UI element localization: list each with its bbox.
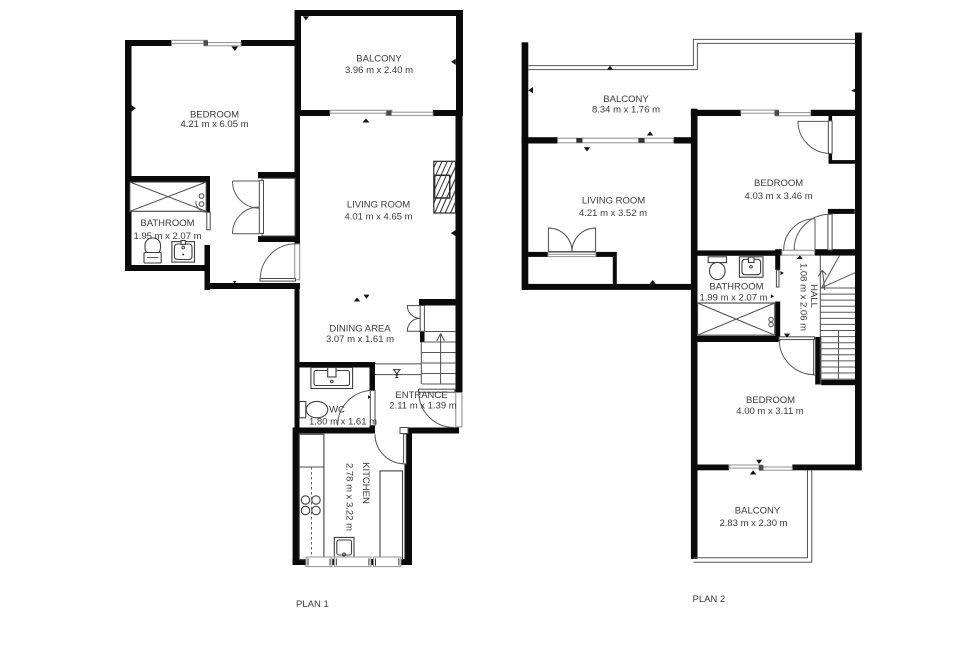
svg-text:BATHROOM: BATHROOM [709,282,763,293]
svg-text:WC: WC [329,405,345,416]
svg-text:ENTRANCE: ENTRANCE [395,390,447,401]
svg-text:2.11 m x 1.39 m: 2.11 m x 1.39 m [389,401,456,412]
svg-text:1.95 m x 2.07 m: 1.95 m x 2.07 m [133,231,201,242]
svg-text:1.08 m x 2.06 m: 1.08 m x 2.06 m [797,263,808,331]
svg-text:HALL: HALL [808,284,819,308]
svg-text:2.78 m x 3.22 m: 2.78 m x 3.22 m [344,463,355,531]
svg-text:BALCONY: BALCONY [603,94,649,105]
svg-text:4.00 m x 3.11 m: 4.00 m x 3.11 m [736,406,803,417]
svg-text:PLAN 1: PLAN 1 [296,599,329,610]
svg-text:BEDROOM: BEDROOM [746,395,795,406]
svg-text:8.34 m x 1.76 m: 8.34 m x 1.76 m [592,104,660,115]
svg-text:3.07 m x 1.61 m: 3.07 m x 1.61 m [326,334,394,345]
svg-text:DINING AREA: DINING AREA [329,323,391,334]
svg-text:PLAN 2: PLAN 2 [693,594,726,605]
svg-text:1.80 m x 1.61 m: 1.80 m x 1.61 m [309,416,377,427]
svg-text:2.83 m x 2.30 m: 2.83 m x 2.30 m [719,518,787,529]
svg-text:LIVING ROOM: LIVING ROOM [347,200,410,211]
svg-text:BALCONY: BALCONY [735,506,781,517]
svg-text:KITCHEN: KITCHEN [360,462,371,504]
svg-text:LIVING ROOM: LIVING ROOM [582,196,645,207]
svg-text:1.99 m x 2.07 m: 1.99 m x 2.07 m [699,292,767,303]
svg-text:BALCONY: BALCONY [356,53,402,64]
svg-text:4.21 m x 6.05 m: 4.21 m x 6.05 m [180,119,248,130]
svg-text:BATHROOM: BATHROOM [140,218,194,229]
svg-text:3.96 m x 2.40 m: 3.96 m x 2.40 m [345,65,413,76]
svg-text:4.21 m x 3.52 m: 4.21 m x 3.52 m [579,208,647,219]
svg-text:4.03 m x 3.46 m: 4.03 m x 3.46 m [745,191,813,202]
svg-text:BEDROOM: BEDROOM [754,178,803,189]
svg-text:4.01 m x 4.65 m: 4.01 m x 4.65 m [344,211,412,222]
